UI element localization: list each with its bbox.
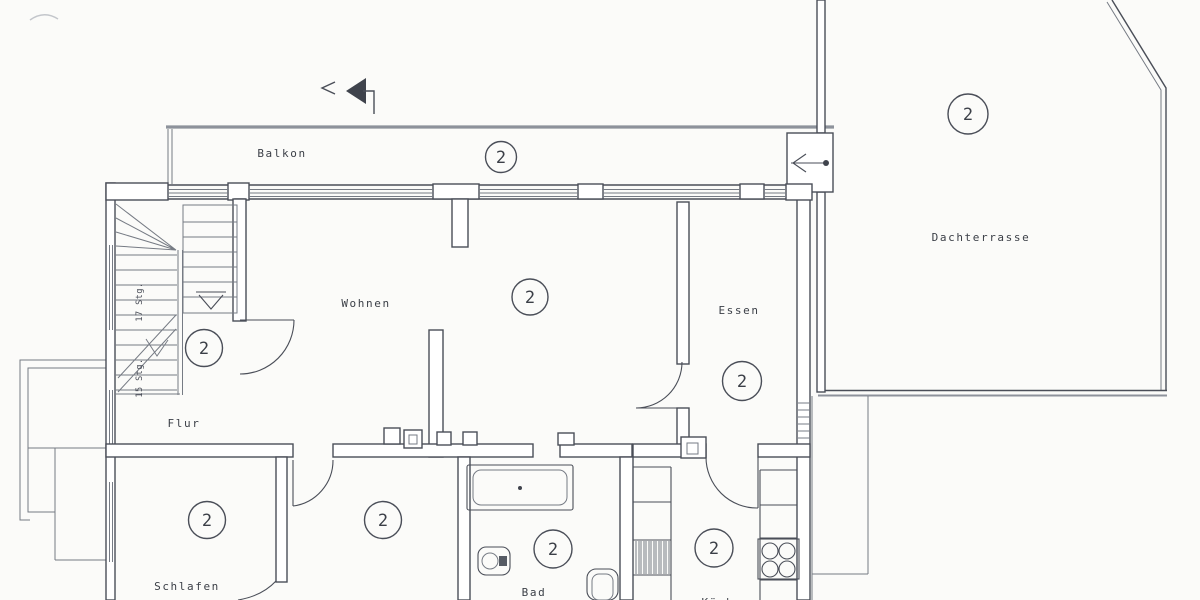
kitchen-label: Küche — [701, 596, 742, 600]
svg-text:2: 2 — [548, 540, 558, 560]
door-arc-room — [293, 460, 333, 506]
svg-text:2: 2 — [199, 339, 209, 359]
svg-text:2: 2 — [963, 105, 973, 125]
scan-artifact — [30, 15, 58, 20]
door-arc-hall-wohnen — [240, 320, 294, 374]
stairs-down-label: 15 Stg. — [135, 358, 145, 397]
unit-marker-schlafen: 2 — [189, 502, 226, 539]
unit-marker-essen: 2 — [723, 362, 762, 401]
stove-icon — [758, 539, 799, 579]
unit-marker-kueche: 2 — [695, 529, 733, 567]
svg-text:2: 2 — [202, 511, 212, 531]
stairs-up-label: 17 Stg. — [135, 282, 145, 321]
stair-direction-arrow-icon — [196, 292, 226, 309]
floor-plan-canvas: 17 Stg. 15 Stg. 2 — [0, 0, 1200, 600]
toilet-icon — [587, 569, 618, 600]
svg-text:2: 2 — [378, 511, 388, 531]
bathtub-icon — [467, 465, 573, 510]
unit-marker-dachterrasse: 2 — [948, 94, 988, 134]
terrace-door-arrow-icon — [787, 133, 833, 192]
unit-marker-room2: 2 — [365, 502, 402, 539]
door-arc-schlafen — [238, 581, 276, 600]
svg-text:2: 2 — [496, 148, 506, 168]
unit-marker-flur: 2 — [186, 330, 223, 367]
roof-edge-strip — [812, 396, 868, 600]
floor-plan-page: 17 Stg. 15 Stg. 2 — [0, 0, 1200, 600]
interior-walls — [106, 199, 810, 600]
unit-marker-bad: 2 — [534, 530, 572, 568]
bathroom-label: Bad — [522, 586, 547, 599]
roof-terrace — [817, 0, 1167, 396]
living-room-label: Wohnen — [341, 297, 390, 310]
svg-text:2: 2 — [525, 288, 535, 308]
hallway-label: Flur — [168, 417, 201, 430]
svg-text:2: 2 — [709, 539, 719, 559]
roof-terrace-label: Dachterrasse — [932, 231, 1031, 244]
unit-marker-wohnen: 2 — [512, 279, 548, 315]
unit-marker-balkon: 2 — [486, 142, 517, 173]
north-arrow-icon — [322, 78, 374, 114]
staircase: 17 Stg. 15 Stg. — [115, 204, 237, 398]
sink-icon — [478, 547, 510, 575]
door-arc-kitchen — [706, 457, 758, 508]
bedroom-label: Schlafen — [154, 580, 220, 593]
balcony-label: Balkon — [257, 147, 306, 160]
svg-text:2: 2 — [737, 372, 747, 392]
lower-balcony-outline — [20, 360, 106, 560]
dining-room-label: Essen — [718, 304, 759, 317]
door-arc-wohnen-essen — [636, 362, 682, 408]
